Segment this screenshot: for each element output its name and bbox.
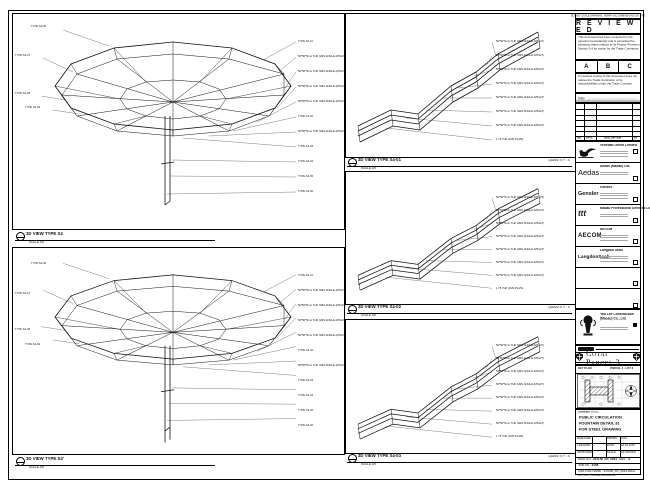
annotation-label: 50*50*5mm THK GMS ANGLE (MS127) (496, 370, 544, 373)
annotation-label: TYPE S4-37 (15, 54, 30, 57)
drawing-title-line: FOR STEEL DRAWING (579, 428, 621, 432)
shield-ornament-icon (633, 353, 640, 363)
gensler-logo: Gensler (578, 191, 598, 197)
view-title-mid-bottom: 3D VIEW TYPE S4-03 QUANTITY : 4 SCALE 1/… (347, 454, 572, 463)
consultant-name: Gensler (600, 186, 612, 189)
cad-file-value: 31SUB_FD_0034.DWG (604, 470, 636, 473)
annotation-label: 50*50*5mm THK GMS ANGLE (MS127) (496, 383, 544, 386)
annotation-label: 50*50*5mm THK GMS ANGLE (MS127) (496, 110, 544, 113)
titleblock-column: DO NOT SCALE DRAWING. VERIFY ALL DIMENSI… (575, 13, 641, 475)
date-fill-line (588, 96, 638, 99)
annotation-label: TYPE S4-45 (298, 409, 313, 412)
annotation-label: 50*50*5mm THK GMS ANGLE (MS127) (496, 209, 544, 212)
keyplan-box: KEY PLAN PARCEL 3 - LOT 2 (575, 365, 641, 409)
view-badge-icon (348, 305, 357, 314)
annotation-label: TYPE S4-41 (298, 274, 313, 277)
annotation-label: TYPE S4-47 (15, 292, 30, 295)
view-badge-icon (16, 232, 25, 241)
grid-cell: DESIGNED (577, 437, 591, 440)
annotation-label: 50*50*5mm THK GMS ANGLE (MS127) (496, 54, 544, 57)
view-panel-left-top: TYPE S4-30 TYPE S4-37 TYPE S4-38 TYPE S4… (12, 13, 345, 230)
titleblock-note: DO NOT SCALE DRAWING (578, 474, 616, 477)
grid-cell: CAD (621, 437, 627, 440)
keyplan-ref: PARCEL 3 - LOT 2 (610, 367, 633, 370)
annotation-label: TYPE S4-42 (298, 349, 313, 352)
consultant-name: Langdon Seah (600, 249, 623, 252)
annotation-label: 50*50*5mm THK GMS ANGLE (MS127) (298, 85, 346, 88)
mps-logo: ttt (578, 209, 586, 218)
consultant-empty-2 (576, 289, 640, 310)
annotation-label: 50*50*5mm THK GMS ANGLE (MS127) (496, 409, 544, 412)
keyplan-label: KEY PLAN (578, 367, 592, 370)
view-badge-icon (348, 454, 357, 463)
annotation-label: TYPE S4-48 (15, 328, 30, 331)
review-note-1: This document has been reviewed by the r… (575, 34, 641, 60)
address-lines (600, 256, 628, 263)
view-scale-text: SCALE 1/8 (29, 241, 44, 244)
annotation-label: 50*50*5mm THK GMS ANGLE (MS127) (496, 235, 544, 238)
annotation-label: 50*50*5mm THK GMS ANGLE (MS127) (496, 196, 544, 199)
view-badge-icon (348, 158, 357, 167)
annotation-label: 50*50*5mm THK GMS ANGLE (MS127) (496, 96, 544, 99)
annotation-label: TYPE S4-30 (31, 25, 46, 28)
annotation-label: 50*50*5mm THK GMS ANGLE (MS127) (298, 304, 346, 307)
job-no-label: JOB NO : (578, 464, 591, 467)
review-note-2-text: Consultant review of this document does … (578, 75, 640, 86)
view-panel-mid-top: 50*50*5mm THK GMS ANGLE (MS127)50*50*5mm… (345, 13, 576, 158)
annotation-label: TYPE S4-38 (15, 92, 30, 95)
view-scale-text: SCALE 1/8 (361, 314, 376, 317)
annotation-label: TYPE S4-34 (298, 160, 313, 163)
annotation-label: 50*50*5mm THK GMS ANGLE (MS127) (298, 334, 346, 337)
grid-cell: - (593, 444, 594, 447)
status-checkbox (633, 303, 639, 309)
annotation-label: 50*50*5mm THK GMS ANGLE (MS127) (298, 55, 346, 58)
annotation-label: TYPE S4-44 (298, 394, 313, 397)
annotation-label: TYPE S4-31 (298, 40, 313, 43)
consultant-gensler: Gensler Gensler (576, 184, 640, 205)
annotation-label: 50*50*5mm THK GMS ANGLE (MS127) (496, 357, 544, 360)
annotation-label: 50*50*5mm THK GMS ANGLE (MS127) (496, 422, 544, 425)
venetian-lion-logo-icon (577, 146, 598, 164)
annotation-label: TYPE S4-35 (298, 175, 313, 178)
status-checkbox (633, 239, 639, 245)
rev-label: REV : (619, 458, 627, 461)
consultant-venetian: Venetian Orient Limited (576, 142, 640, 163)
annotation-label: 50*50*5mm THK GMS ANGLE (MS127) (496, 124, 544, 127)
view-title-mid-middle: 3D VIEW TYPE S4-02 QUANTITY : 4 SCALE 1/… (347, 305, 572, 314)
contractor-box: Yau Lee Construction (Macau) Co., Ltd. (575, 309, 641, 345)
drawing-title-line: FOUNTAIN DETAIL 31 (579, 422, 620, 426)
grid-cell: DRAWN (607, 437, 617, 440)
annotation-label: 50*50*5mm THK GMS ANGLE (MS127) (496, 82, 544, 85)
review-note-2: Consultant review of this document does … (575, 73, 641, 93)
yaulee-logo-icon (579, 314, 597, 345)
annotation-label: 50*50*5mm THK GMS ANGLE (MS127) (298, 100, 346, 103)
address-lines (600, 172, 628, 177)
reviewed-stamp-text: R E V I E W E D (576, 20, 640, 33)
consultant-langdonseah: LangdonSeah Langdon Seah (576, 247, 640, 268)
view-scale-text: SCALE 1/8 (29, 466, 44, 469)
project-banner: Cotai Parcel 3 (575, 345, 641, 365)
annotation-label: 50*50*5mm THK GMS ANGLE (MS127) (298, 70, 346, 73)
revision-table: NO. DATE DESCRIPTION BY (575, 103, 641, 141)
view-scale-text: SCALE 1/8 (361, 167, 376, 170)
scale-note-text: DO NOT SCALE DRAWING. VERIFY ALL DIMENSI… (570, 15, 645, 18)
view-scale-text: SCALE 1/8 (361, 463, 376, 466)
quantity-text: QUANTITY : 4 (549, 159, 570, 162)
consultant-name: Macau Professional Services Ltd. (600, 207, 650, 210)
drawing-sheet: TYPE S4-30 TYPE S4-37 TYPE S4-38 TYPE S4… (8, 10, 644, 480)
annotation-label: 1.75 THK GMS PLATE (496, 287, 523, 290)
annotation-label: 1.75 THK GMS PLATE (496, 435, 523, 438)
view-title-text: 3D VIEW TYPE S4-01 (358, 158, 401, 162)
date-row: Date : (575, 93, 641, 103)
contractor-name: Yau Lee Construction (Macau) Co., Ltd. (600, 313, 636, 321)
project-banner-text: Cotai Parcel 3 (586, 349, 630, 367)
grade-c-cell: C (619, 61, 640, 72)
annotation-label: 50*50*5mm THK GMS ANGLE (MS127) (496, 248, 544, 251)
address-lines (600, 327, 628, 332)
dwg-no-value: 31SUB_FD_0034 (593, 458, 617, 461)
annotation-label: TYPE S4-49 (25, 343, 40, 346)
consultant-empty-1 (576, 268, 640, 289)
consultant-name: Venetian Orient Limited (600, 144, 637, 147)
annotation-label: 50*50*5mm THK GMS ANGLE (MS127) (496, 261, 544, 264)
revtable-header: DESCRIPTION (604, 137, 621, 140)
quantity-text: QUANTITY : 4 (549, 306, 570, 309)
cad-file-label: CAD FILE NAME : (578, 470, 603, 473)
revtable-header: NO. (577, 137, 581, 140)
grade-a-cell: A (576, 61, 598, 72)
annotation-label: 50*50*5mm THK GMS ANGLE (MS127) (496, 274, 544, 277)
view-title-text: 3D VIEW TYPE S4 (26, 232, 63, 236)
status-checkbox (633, 281, 639, 287)
reviewed-stamp: R E V I E W E D (575, 19, 641, 34)
grid-cell: - (593, 451, 594, 454)
view-title-left-top: 3D VIEW TYPE S4 SCALE 1/8 (15, 232, 215, 241)
job-no-value: 3158 (592, 464, 599, 467)
annotation-label: TYPE S4-33 (298, 145, 313, 148)
shield-ornament-icon (576, 353, 583, 363)
annotation-label: TYPE S4-40 (31, 262, 46, 265)
consultant-stack: Venetian Orient Limited Aedas Aedas (Mac… (575, 141, 641, 309)
view-badge-icon (16, 457, 25, 466)
revtable-header: DATE (586, 137, 593, 140)
aecom-logo: AECOM (578, 233, 602, 239)
dwg-no-label: DWG NO : (578, 458, 592, 461)
grid-cell: 24-04-2015 (621, 444, 635, 447)
consultant-name: Aedas (Macau) Ltd. (600, 165, 630, 168)
grid-cell: DATE (607, 444, 614, 447)
status-checkbox (633, 197, 639, 203)
annotation-label: TYPE S4-46 (298, 424, 313, 427)
drawing-title-block: DRAWING TITLE: PUBLIC CIRCULATION FOUNTA… (575, 409, 641, 475)
annotation-label: 50*50*5mm THK GMS ANGLE (MS127) (298, 364, 346, 367)
annotation-label: 50*50*5mm THK GMS ANGLE (MS127) (496, 344, 544, 347)
view-panel-mid-bottom: 50*50*5mm THK GMS ANGLE (MS127)50*50*5mm… (345, 319, 576, 454)
annotation-label: 50*50*5mm THK GMS ANGLE (MS127) (298, 289, 346, 292)
annotation-label: TYPE S4-36 (298, 190, 313, 193)
quantity-text: QUANTITY : 4 (549, 455, 570, 458)
grade-b-cell: B (598, 61, 620, 72)
annotation-label: 1.75 THK GMS PLATE (496, 138, 523, 141)
annotation-label: TYPE S4-43 (298, 379, 313, 382)
drawing-title-line: PUBLIC CIRCULATION (579, 416, 622, 420)
view-title-text: 3D VIEW TYPE S4-02 (358, 305, 401, 309)
view-title-mid-top: 3D VIEW TYPE S4-01 QUANTITY : 4 SCALE 1/… (347, 158, 572, 167)
review-grade-row: A B C (575, 60, 641, 73)
rev-value: A (628, 458, 630, 461)
view-panel-left-bottom: TYPE S4-40 TYPE S4-47 TYPE S4-48 TYPE S4… (12, 247, 345, 455)
consultant-mps: ttt Macau Professional Services Ltd. (576, 205, 640, 226)
annotation-label: 50*50*5mm THK GMS ANGLE (MS127) (298, 319, 346, 322)
status-checkbox (633, 260, 639, 266)
annotation-label: 50*50*5mm THK GMS ANGLE (MS127) (298, 130, 346, 133)
review-note-1-text: This document has been reviewed by the r… (578, 36, 640, 51)
drawing-title-label: DRAWING TITLE: (578, 411, 599, 414)
status-checkbox (633, 149, 639, 155)
view-title-text: 3D VIEW TYPE S4' (26, 457, 64, 461)
annotation-label: TYPE S4-39 (25, 106, 40, 109)
address-lines (600, 151, 628, 158)
grid-cell: SCALE (607, 451, 616, 454)
consultant-name: AECOM (600, 228, 612, 231)
address-lines (600, 235, 628, 242)
filled-status-square (633, 323, 637, 327)
aedas-logo: Aedas (578, 168, 599, 177)
grid-cell: AS SHOWN (621, 451, 636, 454)
keyplan-drawing (577, 374, 640, 413)
view-title-left-bottom: 3D VIEW TYPE S4' SCALE 1/8 (15, 457, 215, 466)
annotation-label: TYPE S4-32 (298, 115, 313, 118)
consultant-aecom: AECOM AECOM (576, 226, 640, 247)
address-lines (600, 214, 628, 219)
consultant-aedas: Aedas Aedas (Macau) Ltd. (576, 163, 640, 184)
annotation-label: 50*50*5mm THK GMS ANGLE (MS127) (496, 68, 544, 71)
grid-cell: CHECKED (577, 444, 590, 447)
status-checkbox (633, 218, 639, 224)
annotation-label: 50*50*5mm THK GMS ANGLE (MS127) (496, 396, 544, 399)
view-title-text: 3D VIEW TYPE S4-03 (358, 454, 401, 458)
status-checkbox (633, 176, 639, 182)
revtable-header: BY (634, 137, 638, 140)
annotation-label: 50*50*5mm THK GMS ANGLE (MS127) (496, 40, 544, 43)
annotation-label: 50*50*5mm THK GMS ANGLE (MS127) (496, 222, 544, 225)
grid-cell: APPROVED (577, 451, 592, 454)
view-panel-mid-middle: 50*50*5mm THK GMS ANGLE (MS127)50*50*5mm… (345, 171, 576, 305)
address-lines (600, 193, 628, 200)
